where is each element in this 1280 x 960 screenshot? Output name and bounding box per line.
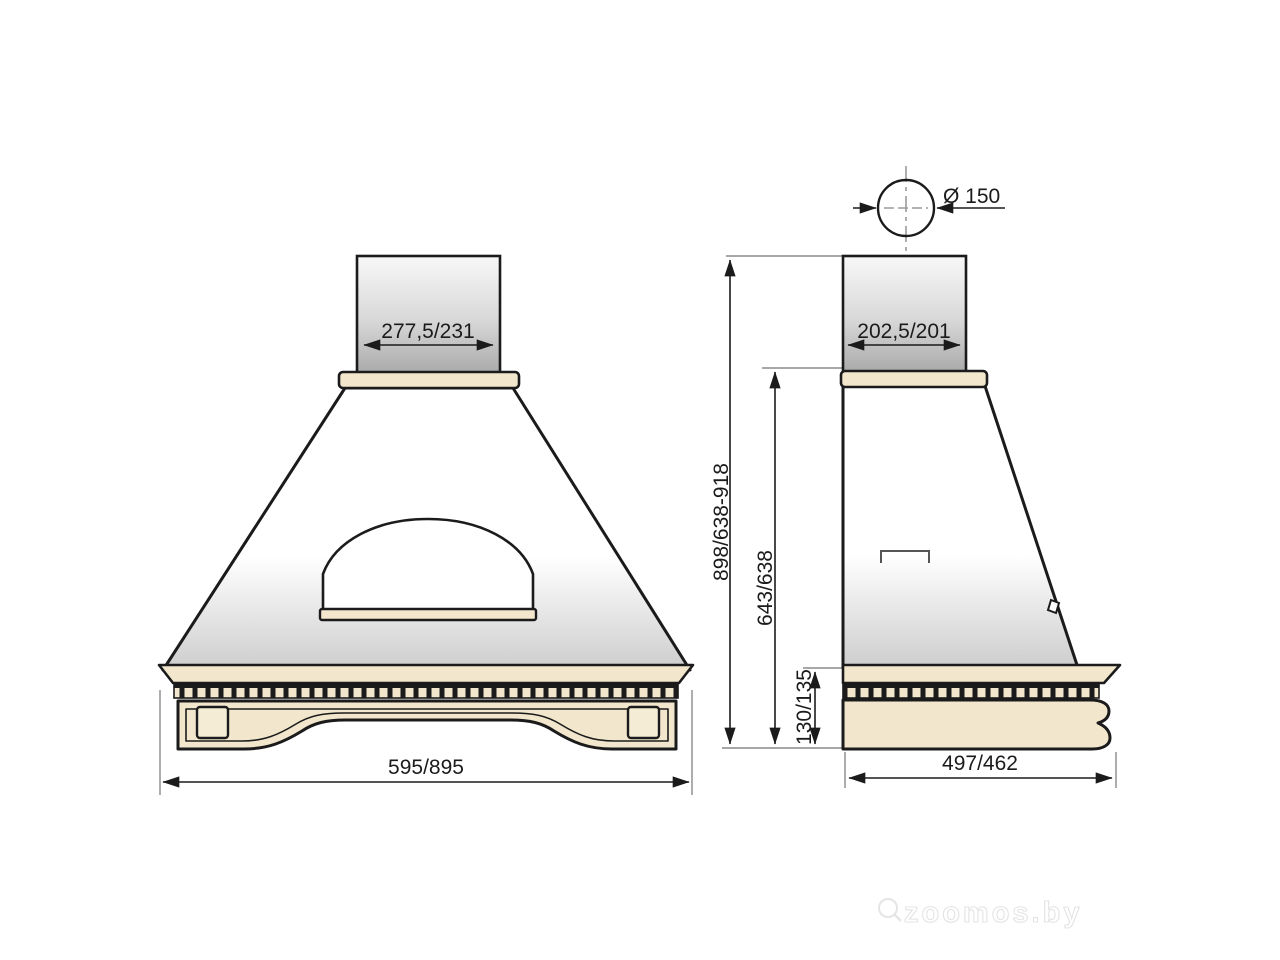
overall-height-label: 898/638-918 [710,463,733,581]
watermark: zoomos.by [879,897,1082,929]
side-view [841,166,1120,749]
duct-diameter-label: Ø 150 [943,185,1000,208]
front-arch-sill [320,609,536,620]
side-duct-collar [841,371,987,387]
front-chimney-duct [357,256,500,373]
base-height-label: 130/135 [793,669,816,745]
watermark-text: zoomos.by [904,897,1082,929]
technical-drawing-page: 277,5/231 595/895 202,5/201 Ø 150 497/46… [0,0,1280,960]
front-corbel-right [628,707,659,738]
front-base-width-label: 595/895 [388,756,464,779]
front-duct-width-label: 277,5/231 [381,320,474,343]
front-duct-collar [339,372,519,388]
side-base-depth-label: 497/462 [942,752,1018,775]
front-corbel-left [197,707,228,738]
side-edge-clip [1048,600,1059,613]
side-duct-depth-label: 202,5/201 [857,320,950,343]
side-apron [843,700,1110,749]
body-height-label: 643/638 [754,550,777,626]
side-dentil-molding [843,684,1099,698]
front-dentil-molding [174,684,678,698]
magnifier-icon-handle [894,914,901,921]
front-cornice [159,665,693,683]
side-hood-body [843,386,1078,668]
side-cornice [843,665,1120,683]
side-chimney-duct [843,256,966,372]
range-hood-dimension-diagram: 277,5/231 595/895 202,5/201 Ø 150 497/46… [0,0,1280,960]
